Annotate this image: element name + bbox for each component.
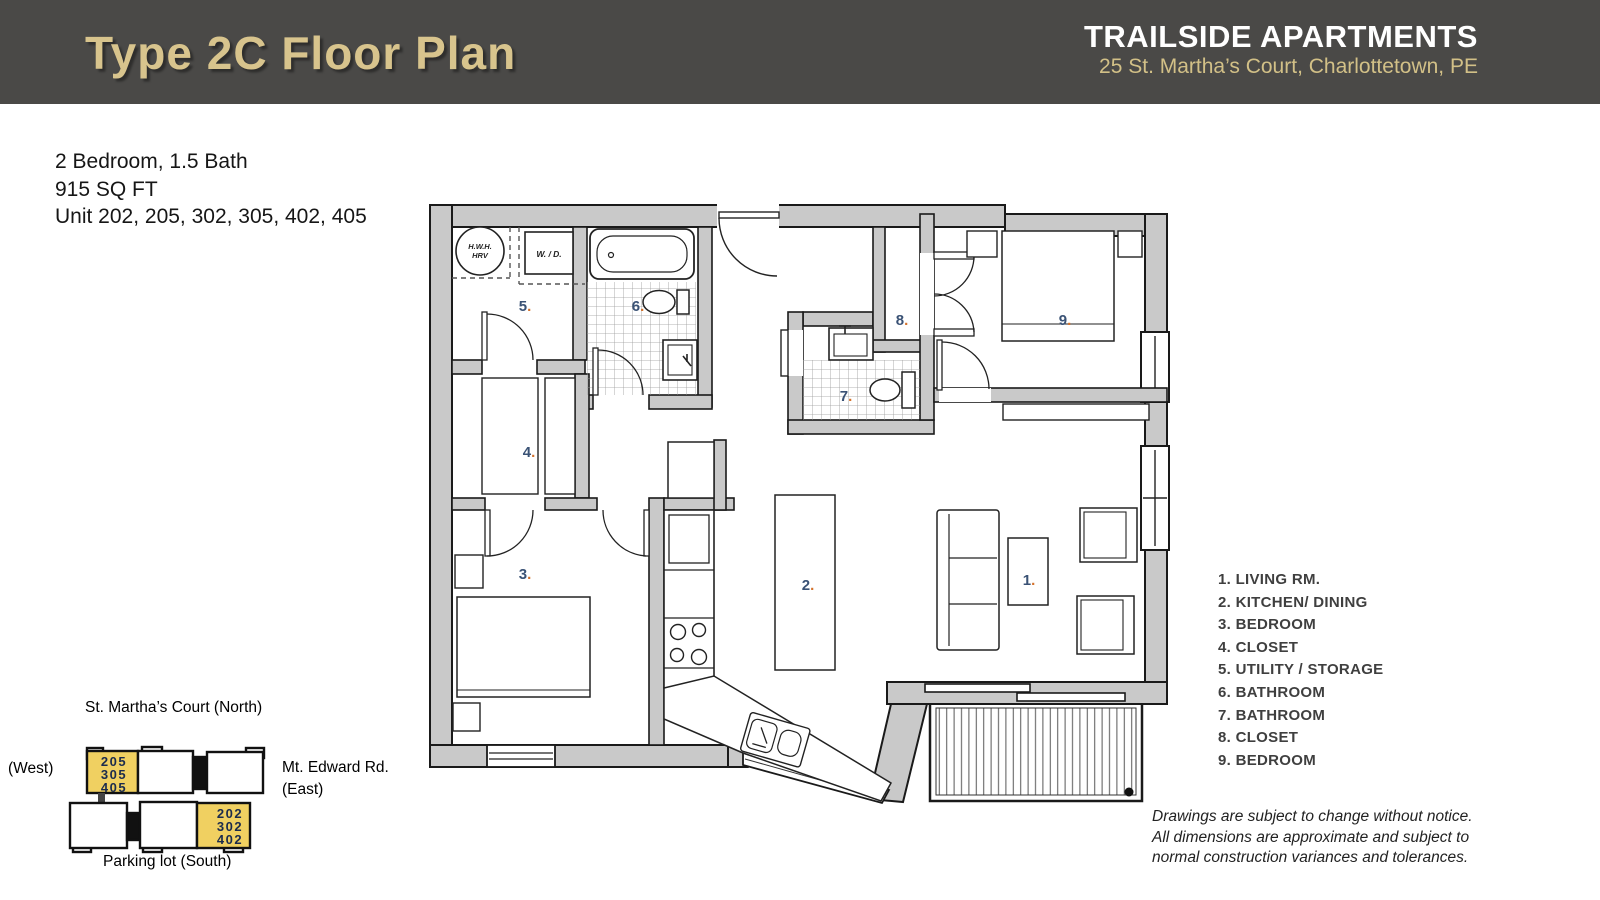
site-label-east2: (East) [282, 781, 323, 798]
fridge [669, 515, 709, 563]
site-label-north: St. Martha’s Court (North) [85, 699, 262, 716]
chair [1080, 508, 1137, 562]
legend-item: 3. BEDROOM [1218, 614, 1383, 637]
room-label-9: 9. [1059, 312, 1072, 329]
site-label-west: (West) [8, 760, 53, 777]
unit-info: 2 Bedroom, 1.5 Bath 915 SQ FT Unit 202, … [55, 148, 367, 231]
site-label-east1: Mt. Edward Rd. [282, 759, 389, 776]
page-title: Type 2C Floor Plan [85, 26, 516, 80]
room-label-8: 8. [896, 312, 909, 329]
sofa [937, 510, 999, 650]
room-label-1: 1. [1023, 572, 1036, 589]
toilet [870, 379, 900, 401]
hrv-label: HRV [472, 251, 489, 260]
room-label-4: 4. [523, 444, 536, 461]
site-map: St. Martha’s Court (North) (West) Mt. Ed… [0, 690, 430, 890]
disclaimer: Drawings are subject to change without n… [1152, 807, 1473, 869]
hall-cabinet [668, 442, 714, 498]
brand-block: TRAILSIDE APARTMENTS 25 St. Martha’s Cou… [1084, 20, 1478, 80]
unit-number: 402 [217, 832, 243, 847]
disclaimer-line2: All dimensions are approximate and subje… [1152, 828, 1473, 849]
closet-8 [934, 252, 974, 336]
legend-item: 1. LIVING RM. [1218, 569, 1383, 592]
hwh-label: H.W.H. [468, 242, 492, 251]
console [1003, 404, 1149, 420]
room-label-7: 7. [840, 388, 853, 405]
utility-room: H.W.H. HRV W. / D. [452, 227, 585, 360]
living-room [937, 508, 1137, 654]
room-label-3: 3. [519, 566, 532, 583]
toilet [643, 291, 675, 314]
site-label-south: Parking lot (South) [103, 853, 231, 870]
room-label-2: 2. [802, 577, 815, 594]
closet-4 [482, 378, 575, 494]
nightstand [1118, 231, 1142, 257]
disclaimer-line3: normal construction variances and tolera… [1152, 848, 1473, 869]
room-label-6: 6. [632, 298, 645, 315]
legend-item: 8. CLOSET [1218, 727, 1383, 750]
entry-door [717, 204, 779, 276]
brand-name: TRAILSIDE APARTMENTS [1084, 20, 1478, 54]
unit-info-line1: 2 Bedroom, 1.5 Bath [55, 148, 367, 176]
bedroom-3 [453, 510, 649, 731]
nightstand [453, 703, 480, 731]
wd-label: W. / D. [536, 249, 561, 259]
window-bedroom3 [487, 745, 555, 767]
balcony-post [1125, 788, 1134, 797]
unit-info-line3: Unit 202, 205, 302, 305, 402, 405 [55, 203, 367, 231]
header-bar: Type 2C Floor Plan TRAILSIDE APARTMENTS … [0, 0, 1600, 104]
legend-item: 4. CLOSET [1218, 637, 1383, 660]
legend-item: 6. BATHROOM [1218, 682, 1383, 705]
disclaimer-line1: Drawings are subject to change without n… [1152, 807, 1473, 828]
room-legend: 1. LIVING RM. 2. KITCHEN/ DINING 3. BEDR… [1218, 569, 1383, 772]
unit-info-line2: 915 SQ FT [55, 176, 367, 204]
balcony [869, 702, 1142, 802]
floor-plan-drawing: H.W.H. HRV W. / D. [425, 198, 1170, 813]
floor-plan-page: Type 2C Floor Plan TRAILSIDE APARTMENTS … [0, 0, 1600, 900]
bed [457, 597, 590, 697]
chair [1077, 596, 1134, 654]
nightstand [967, 231, 997, 257]
legend-item: 5. UTILITY / STORAGE [1218, 659, 1383, 682]
legend-item: 2. KITCHEN/ DINING [1218, 592, 1383, 615]
nightstand [455, 555, 483, 588]
window-right-living [1141, 446, 1169, 550]
brand-address: 25 St. Martha’s Court, Charlottetown, PE [1084, 54, 1478, 80]
room-label-5: 5. [519, 298, 532, 315]
legend-item: 7. BATHROOM [1218, 705, 1383, 728]
legend-item: 9. BEDROOM [1218, 750, 1383, 773]
unit-number: 405 [101, 780, 127, 795]
